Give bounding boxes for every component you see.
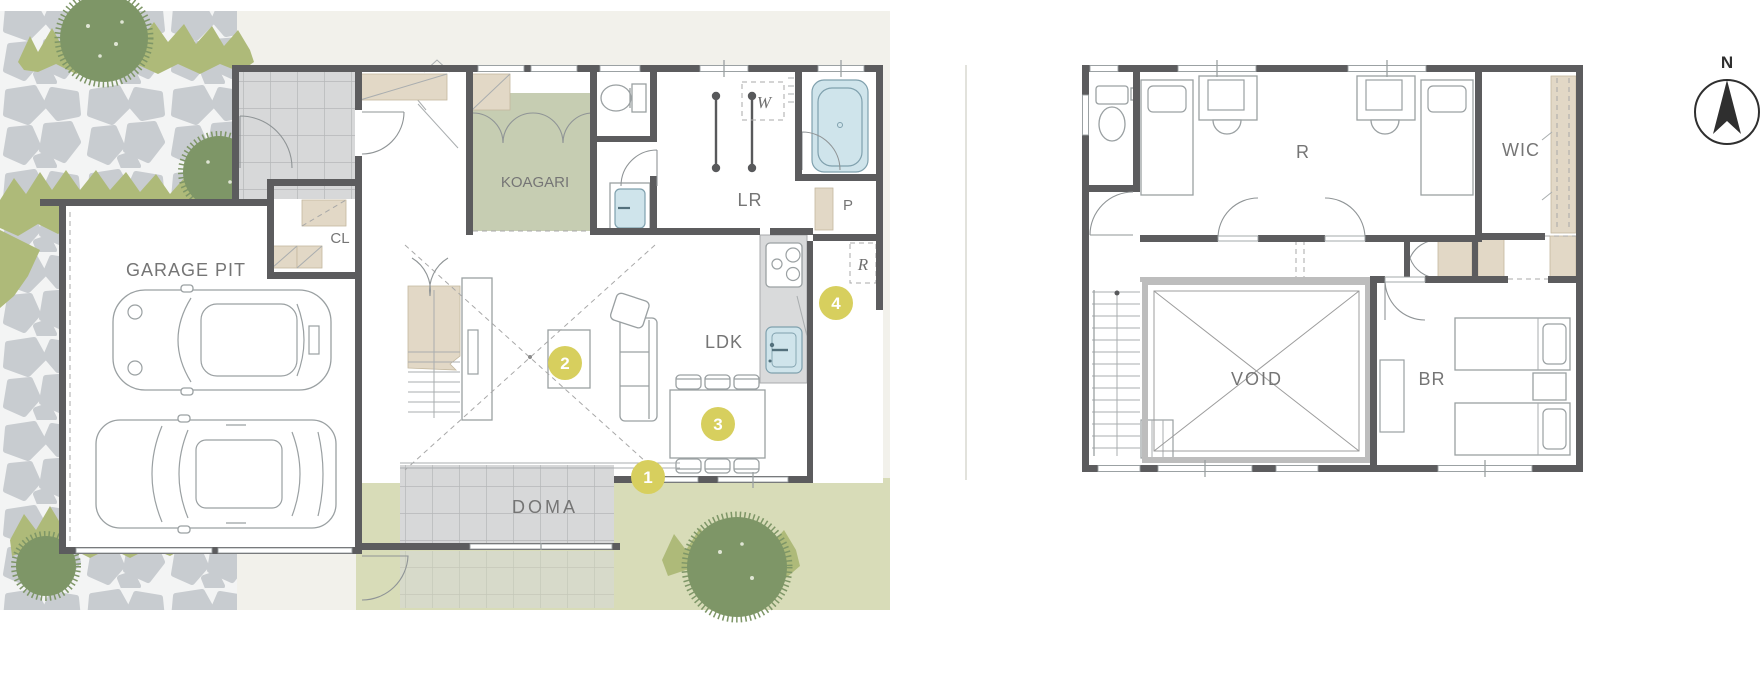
marker-1: 1 (631, 460, 665, 494)
marker-3: 3 (701, 407, 735, 441)
marker-3-number: 3 (713, 415, 722, 434)
ldk-label: LDK (705, 332, 743, 352)
porch-tiles (400, 551, 614, 608)
bed-br2 (1455, 403, 1570, 455)
bathtub-icon (812, 80, 868, 172)
marker-2: 2 (548, 346, 582, 380)
bed-r1 (1141, 80, 1193, 195)
car-sports (113, 285, 331, 395)
void-top-edge (1140, 277, 1370, 282)
bed-r2 (1421, 80, 1473, 195)
cl-label: CL (330, 230, 349, 247)
br-label: BR (1418, 369, 1445, 389)
void-label: VOID (1231, 369, 1283, 389)
compass-north-label: N (1721, 53, 1733, 72)
marker-1-number: 1 (643, 468, 652, 487)
bed-br1 (1455, 318, 1570, 370)
r-room-label: R (1296, 142, 1310, 162)
doma-label: DOMA (512, 497, 578, 517)
compass-needle-icon (1713, 80, 1741, 134)
marker-2-number: 2 (560, 354, 569, 373)
pantry-shelf (815, 188, 833, 230)
compass: N (1695, 53, 1759, 144)
floor-plan-drawing: GARAGE PIT CL KOAGARI LR W P R LDK DOMA … (0, 0, 1761, 690)
nightstand (1533, 373, 1566, 400)
wic-label: WIC (1502, 140, 1540, 160)
koagari-label: KOAGARI (501, 174, 569, 191)
floor2-plan (966, 60, 1583, 480)
washstand-icon (610, 183, 650, 233)
fridge-label: R (857, 255, 869, 274)
garage-label: GARAGE PIT (126, 260, 246, 280)
tv-board (462, 278, 492, 420)
marker-4: 4 (819, 286, 853, 320)
doma-tiles (400, 465, 614, 545)
car-sedan (96, 415, 336, 533)
washer-label: W (757, 93, 773, 112)
toilet-1f-icon (601, 84, 646, 112)
koagari-room (472, 74, 594, 231)
lr-label: LR (737, 190, 762, 210)
marker-4-number: 4 (831, 294, 841, 313)
pantry-label: P (843, 197, 853, 214)
floor-plan-page: GARAGE PIT CL KOAGARI LR W P R LDK DOMA … (0, 0, 1761, 690)
